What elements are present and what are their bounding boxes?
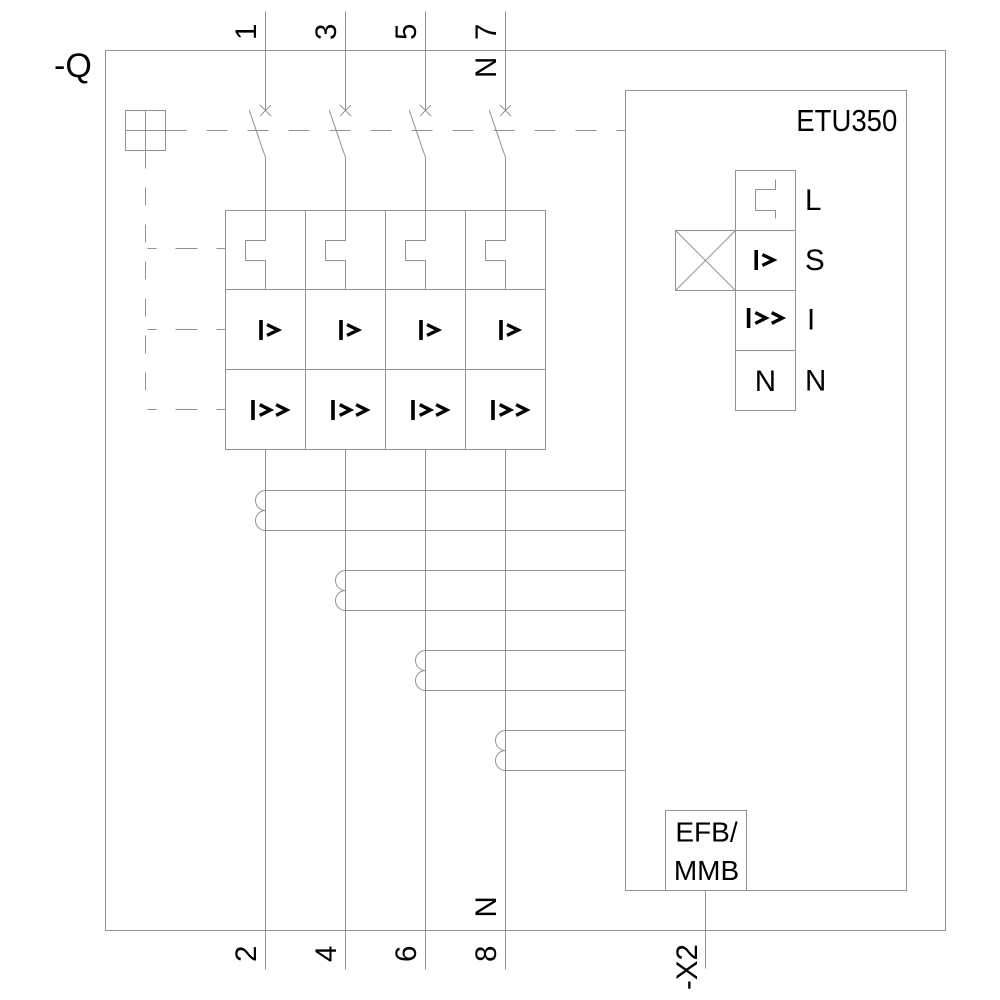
svg-text:8: 8 xyxy=(470,946,503,962)
svg-text:S: S xyxy=(805,244,825,277)
svg-text:-X2: -X2 xyxy=(671,944,704,990)
svg-text:N: N xyxy=(470,896,503,917)
svg-text:I: I xyxy=(807,304,815,337)
svg-text:2: 2 xyxy=(230,946,263,962)
svg-text:1: 1 xyxy=(230,24,263,40)
svg-text:N: N xyxy=(470,57,503,78)
svg-text:6: 6 xyxy=(390,946,423,962)
svg-text:4: 4 xyxy=(310,946,343,962)
svg-text:7: 7 xyxy=(470,24,503,40)
svg-text:-Q: -Q xyxy=(54,47,92,85)
svg-text:N: N xyxy=(805,365,826,398)
svg-text:N: N xyxy=(755,365,776,398)
svg-text:L: L xyxy=(805,184,821,217)
svg-text:MMB: MMB xyxy=(674,855,739,886)
svg-text:EFB/: EFB/ xyxy=(675,817,737,848)
svg-text:3: 3 xyxy=(310,24,343,40)
svg-text:5: 5 xyxy=(390,24,423,40)
svg-text:ETU350: ETU350 xyxy=(796,103,897,138)
